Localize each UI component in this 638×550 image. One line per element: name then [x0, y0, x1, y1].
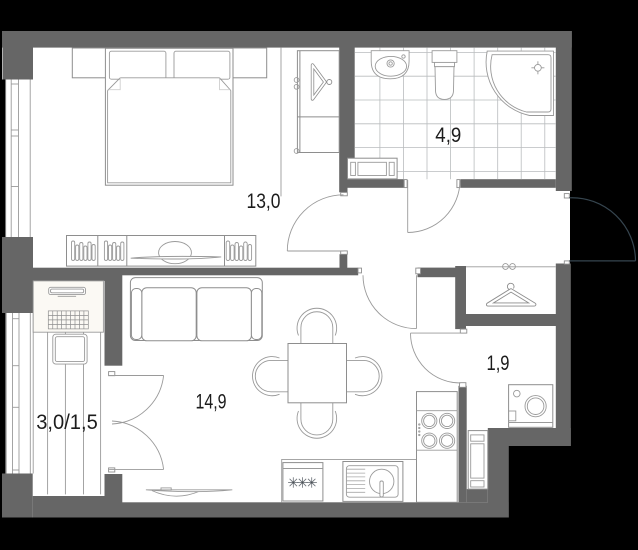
svg-text:4,9: 4,9 — [435, 123, 461, 147]
svg-text:1,9: 1,9 — [487, 351, 510, 375]
svg-text:3,0/1,5: 3,0/1,5 — [36, 410, 98, 434]
svg-text:13,0: 13,0 — [247, 189, 281, 213]
svg-text:14,9: 14,9 — [196, 390, 227, 414]
